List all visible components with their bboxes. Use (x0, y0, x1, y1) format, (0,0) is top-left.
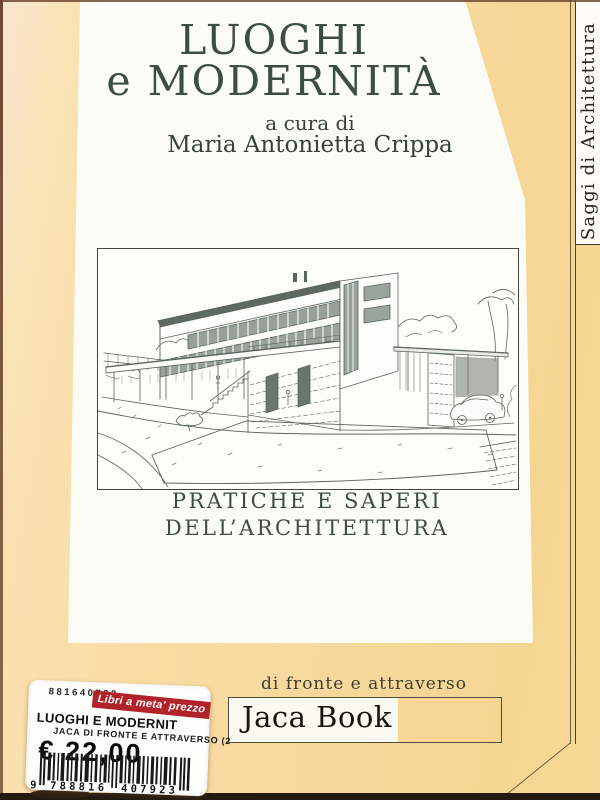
photo-left-edge (0, 0, 3, 793)
publisher-name: Jaca Book (242, 703, 392, 732)
series-name-vertical: Saggi di Architettura (578, 17, 599, 244)
book-cover-photo: LUOGHI e MODERNITÀ a cura di Maria Anton… (0, 0, 600, 800)
cover-subtitle-line2: DELL’ARCHITETTURA (97, 518, 517, 539)
book-title-line1: LUOGHI (72, 20, 476, 61)
barcode: 9 788816 407923 (29, 752, 198, 795)
curator-name: Maria Antonietta Crippa (100, 133, 520, 158)
cover-subtitle-line1: PRATICHE E SAPERI (97, 491, 517, 512)
cover-corner-edge (499, 742, 571, 800)
collection-name: di fronte e attraverso (228, 674, 500, 694)
photo-top-edge (0, 0, 600, 2)
publisher-logo-box: Jaca Book (228, 697, 502, 743)
cover-illustration-frame (97, 248, 519, 490)
barcode-lead-digit: 9 (30, 779, 37, 791)
photo-bottom-edge (0, 793, 600, 800)
series-strip: Saggi di Architettura (575, 0, 600, 245)
villa-sketch-illustration (98, 249, 518, 489)
barcode-group2: 407923 (121, 783, 179, 795)
book-title-line2: e MODERNITÀ (72, 61, 476, 102)
curated-by-label: a cura di (100, 113, 520, 133)
price-sticker: 881640792 Libri a meta' prezzo LUOGHI E … (25, 680, 211, 797)
